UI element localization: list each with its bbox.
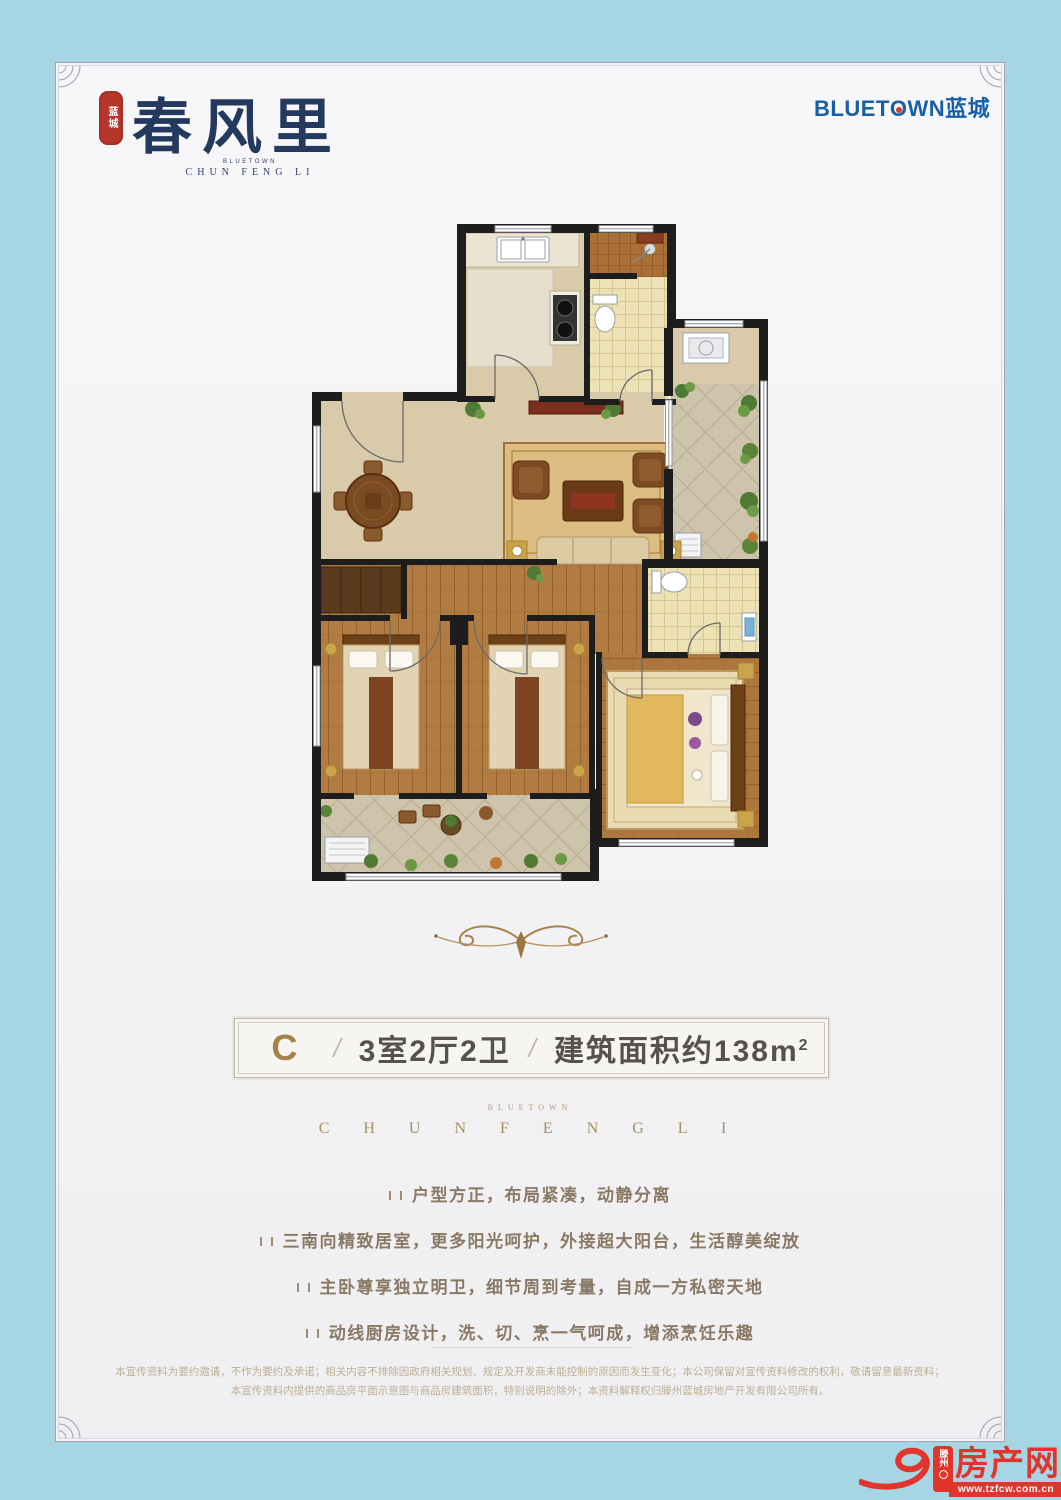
disclaimer: 本宣传资料为要约邀请，不作为要约及承诺；相关内容不排除因政府相关规划、规定及开发… [90, 1363, 970, 1401]
poster-background: { "header": { "seal_text": "蓝城", "title"… [0, 0, 1061, 1500]
unit-area: 建筑面积约138m2 [554, 1026, 810, 1070]
table-runner-icon [571, 493, 615, 509]
brand-text: BLUET [814, 96, 890, 121]
corner-ornament-icon [972, 1409, 1002, 1439]
corner-ornament-icon [58, 1409, 88, 1439]
kitchen-counter-icon [464, 233, 579, 267]
floorplan-image [301, 211, 791, 901]
corner-ornament-icon [58, 65, 88, 95]
feature-text: 主卧尊享独立明卫，细节周到考量，自成一方私密天地 [320, 1278, 764, 1297]
seal-circle-icon [939, 1470, 948, 1479]
flourish-ornament-icon [426, 915, 616, 963]
unit-rooms: 3室2厅2卫 [359, 1026, 511, 1070]
toilet-icon [593, 295, 617, 332]
mid-brand: BLUETOWN C H U N F E N G L I [56, 1103, 1004, 1138]
mid-brand-small: BLUETOWN [56, 1103, 1004, 1112]
project-subtitle: BLUETOWN CHUN FENG LI [134, 159, 366, 178]
stove-icon [550, 291, 580, 345]
bluetown-brand-logo: BLUETOWN蓝城 [814, 91, 990, 123]
region-seal-text: 滕州 [939, 1449, 948, 1467]
disclaimer-line2: 本宣传资料内提供的商品房平面示意图与商品房建筑面积，特别说明的除外；本资料解释权… [90, 1382, 970, 1401]
project-subtitle-en-small: BLUETOWN [134, 159, 366, 165]
bullet-icon [297, 1283, 310, 1292]
bullet-icon [260, 1237, 273, 1246]
divider-line [431, 1347, 631, 1348]
master-sink-icon [742, 613, 756, 641]
feature-text: 三南向精致居室，更多阳光呵护，外接超大阳台，生活醇美绽放 [283, 1232, 801, 1251]
bullet-icon [389, 1191, 402, 1200]
feature-item: 主卧尊享独立明卫，细节周到考量，自成一方私密天地 [56, 1273, 1004, 1298]
unit-info-banner: C / 3室2厅2卫 / 建筑面积约138m2 [234, 1018, 829, 1078]
poster-page: 蓝城 春风里 BLUETOWN CHUN FENG LI BLUETOWN蓝城 [55, 62, 1005, 1442]
brand-seal: 蓝城 [99, 91, 123, 145]
master-toilet-icon [652, 571, 687, 593]
corridor-strip-floor [589, 564, 644, 654]
area-superscript: 2 [799, 1037, 810, 1054]
site-watermark: 滕州 房产网 www.tzfcw.com.cn [845, 1438, 1061, 1500]
e-swoosh-icon [859, 1444, 937, 1494]
site-url: www.tzfcw.com.cn [949, 1482, 1061, 1497]
brand-o-with-dot-icon: O [890, 96, 908, 122]
project-subtitle-en: CHUN FENG LI [134, 167, 366, 178]
project-title: 春风里 [132, 79, 372, 166]
brand-text: WN [907, 96, 945, 121]
disclaimer-line1: 本宣传资料为要约邀请，不作为要约及承诺；相关内容不排除因政府相关规划、规定及开发… [90, 1363, 970, 1382]
decorative-tick-row: · · · · · · · · · · · · · [56, 1331, 1004, 1338]
wardrobe-icon [321, 567, 401, 613]
mid-brand-large: C H U N F E N G L I [56, 1120, 1004, 1138]
unit-type-code: C [271, 1027, 297, 1069]
site-name: 房产网 [955, 1436, 1060, 1485]
separator: / [333, 1033, 340, 1064]
washing-machine-icon [683, 333, 729, 363]
feature-text: 户型方正，布局紧凑，动静分离 [412, 1186, 671, 1205]
brand-cn-text: 蓝城 [945, 96, 990, 121]
feature-item: 三南向精致居室，更多阳光呵护，外接超大阳台，生活醇美绽放 [56, 1227, 1004, 1252]
feature-item: 户型方正，布局紧凑，动静分离 [56, 1181, 1004, 1206]
brand-seal-text: 蓝城 [106, 106, 116, 130]
separator: / [529, 1033, 536, 1064]
